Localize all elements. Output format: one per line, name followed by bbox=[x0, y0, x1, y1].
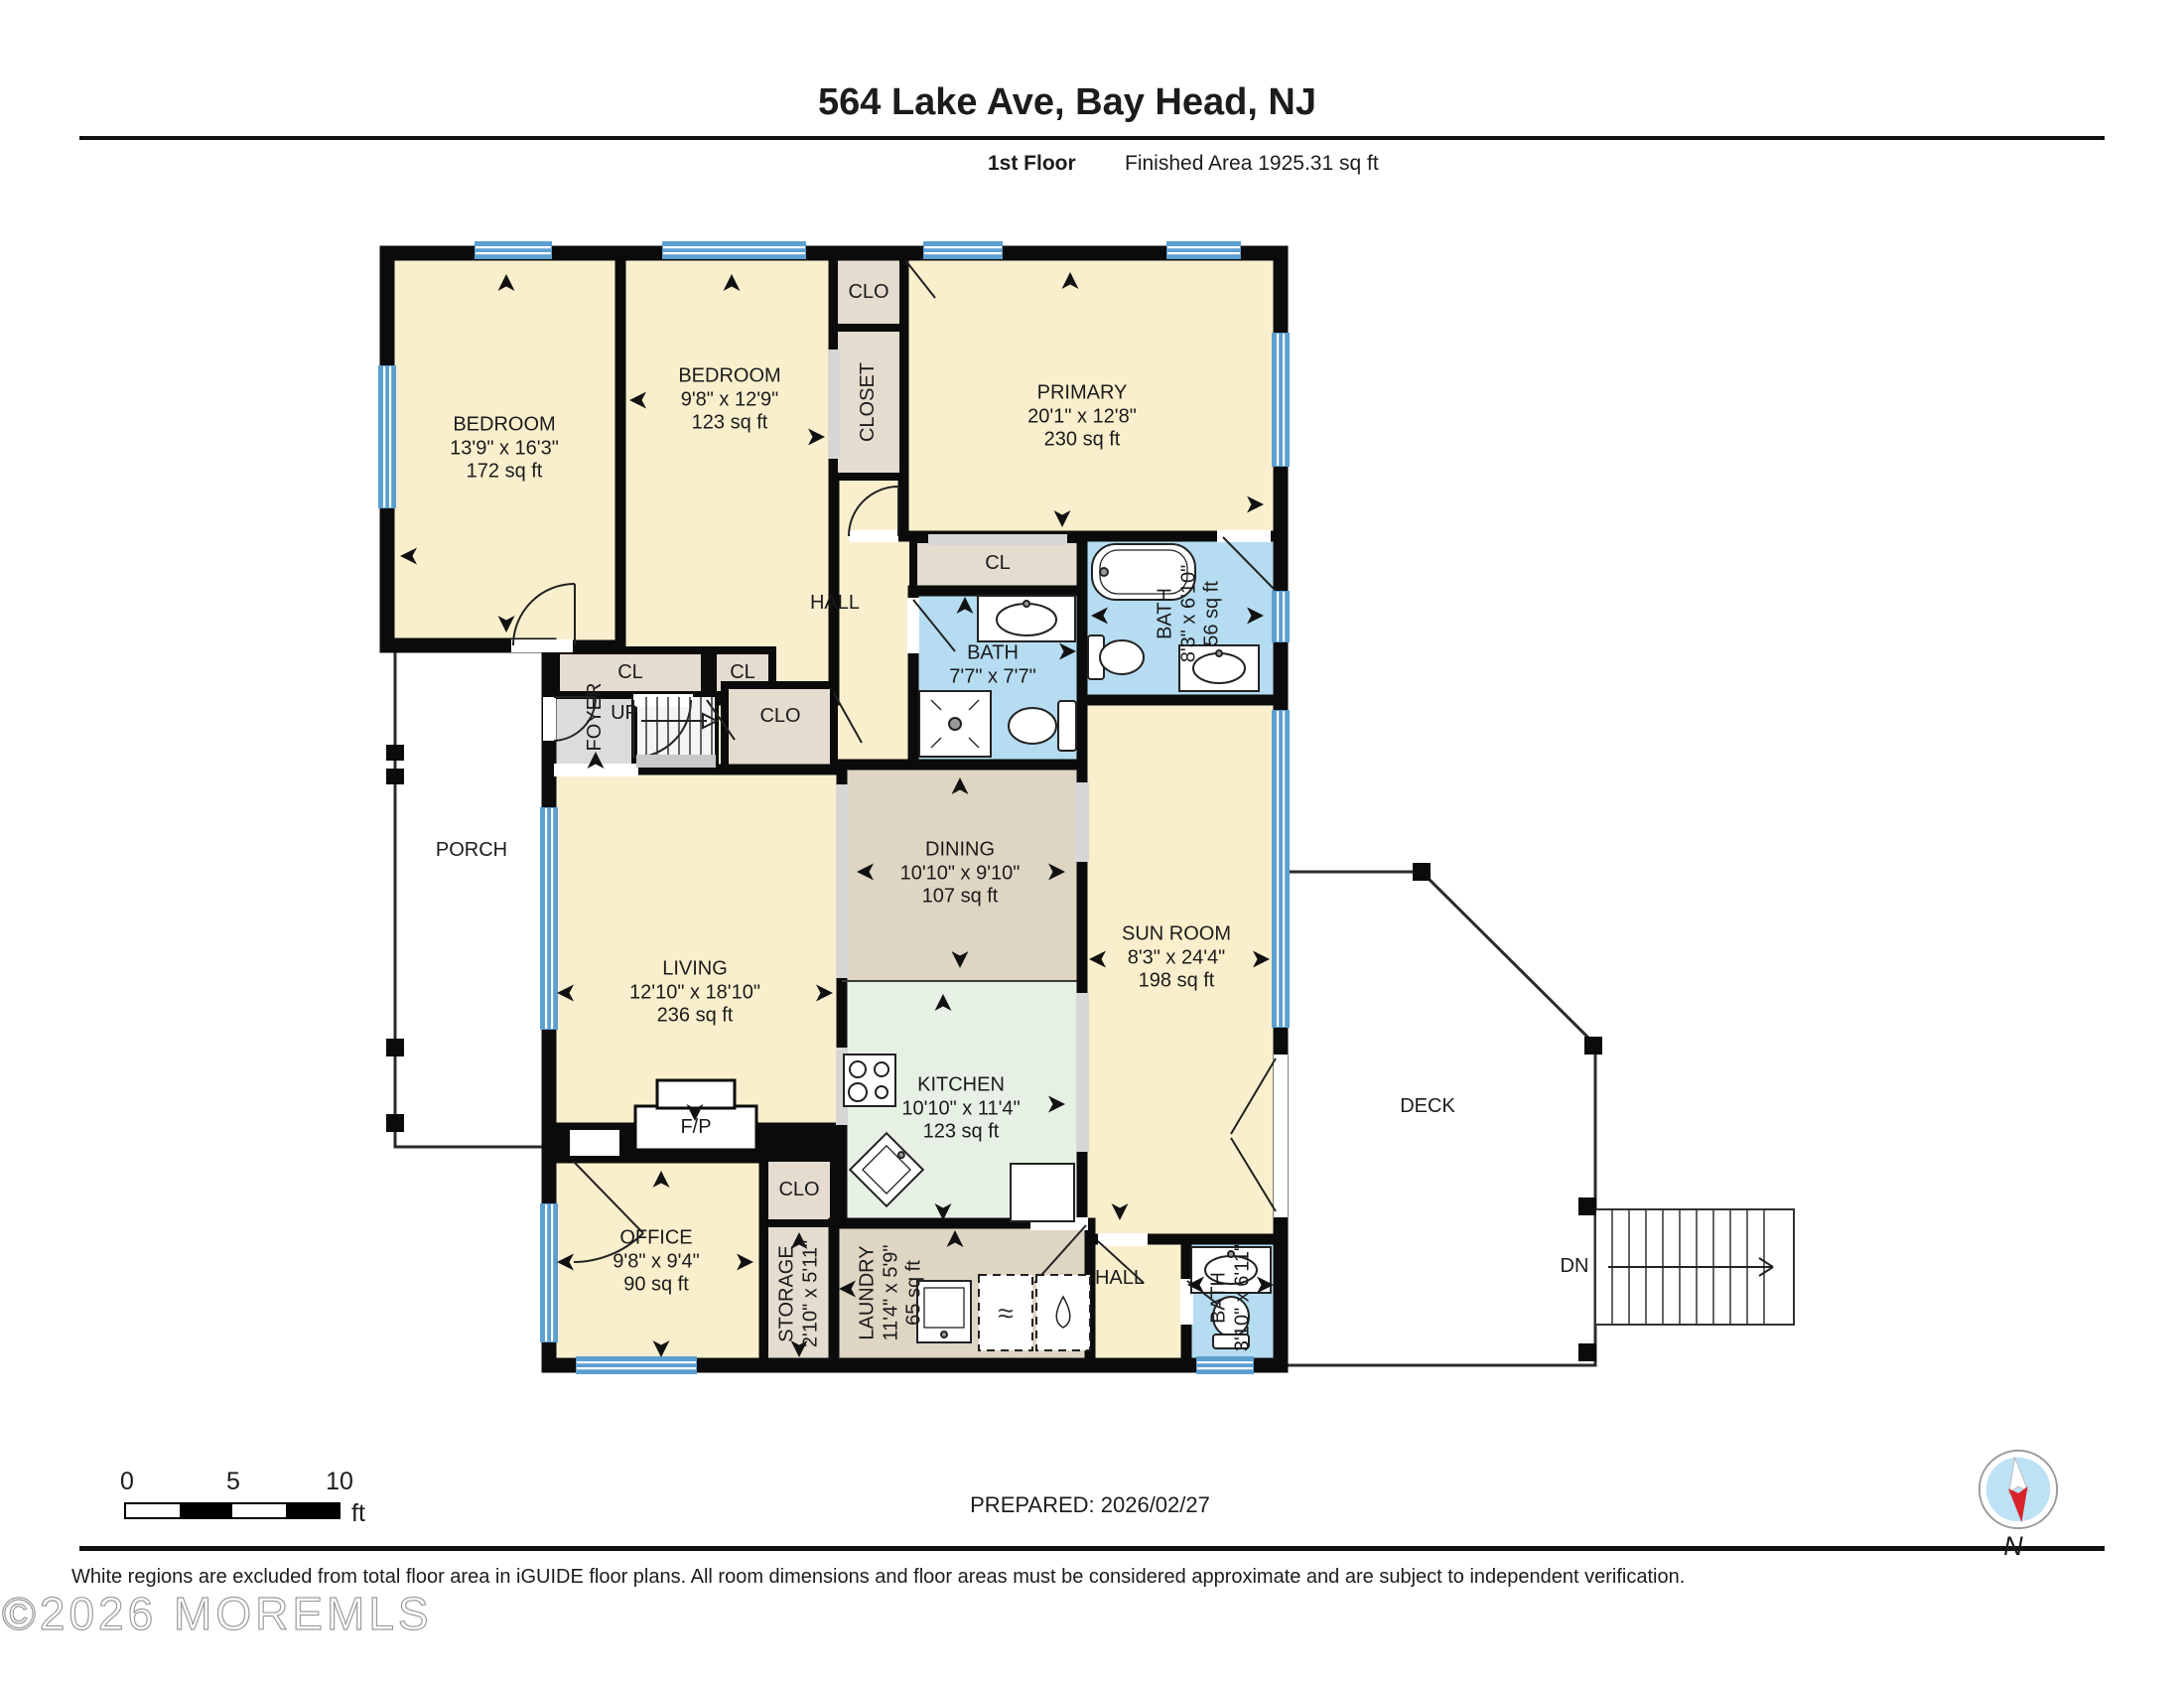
room-name: CLO bbox=[759, 705, 800, 729]
room-label-kitchen: KITCHEN 10'10" x 11'4" 123 sq ft bbox=[901, 1074, 1020, 1145]
room-dims: 9'8" x 9'4" bbox=[613, 1250, 699, 1274]
floor-plan-drawing: ≈ bbox=[0, 0, 2184, 1688]
room-label-sunroom: SUN ROOM 8'3" x 24'4" 198 sq ft bbox=[1122, 923, 1231, 994]
room-name: CLOSET bbox=[857, 362, 881, 442]
room-area: 198 sq ft bbox=[1122, 970, 1231, 994]
room-label-living: LIVING 12'10" x 18'10" 236 sq ft bbox=[629, 958, 760, 1029]
room-label-office: OFFICE 9'8" x 9'4" 90 sq ft bbox=[613, 1227, 699, 1298]
room-name: BATH bbox=[949, 641, 1035, 665]
room-name: UP bbox=[611, 702, 638, 726]
compass-icon bbox=[1974, 1445, 2063, 1534]
scale-tick-5: 5 bbox=[226, 1468, 240, 1496]
room-label-deck: DECK bbox=[1400, 1095, 1455, 1119]
room-label-bath-2: BATH 8'3" x 6'10" 56 sq ft bbox=[1155, 565, 1225, 663]
fireplace-label: F/P bbox=[680, 1116, 711, 1140]
stairs-up-label: UP bbox=[611, 702, 638, 726]
room-label-porch: PORCH bbox=[436, 839, 507, 863]
floorplan-page: 564 Lake Ave, Bay Head, NJ 1st Floor Fin… bbox=[0, 0, 2184, 1688]
room-dims: 7'7" x 7'7" bbox=[949, 665, 1035, 689]
room-dims: 20'1" x 12'8" bbox=[1027, 405, 1137, 429]
room-name: FOYER bbox=[584, 683, 608, 752]
room-label-clo-office: CLO bbox=[778, 1179, 819, 1202]
room-name: BATH bbox=[1155, 565, 1178, 663]
watermark: ©2026 MOREMLS bbox=[2, 1587, 433, 1640]
room-name: HALL bbox=[1095, 1267, 1145, 1291]
room-label-clo-mid: CLO bbox=[759, 705, 800, 729]
scale-unit: ft bbox=[351, 1499, 365, 1528]
porch-outline bbox=[395, 631, 549, 1147]
room-name: OFFICE bbox=[613, 1227, 699, 1251]
room-name: DECK bbox=[1400, 1095, 1455, 1119]
room-label-cl-2: CL bbox=[730, 661, 755, 685]
scale-tick-10: 10 bbox=[326, 1468, 353, 1496]
room-name: CLO bbox=[848, 281, 888, 305]
room-dims: 11'4" x 5'9" bbox=[880, 1244, 903, 1340]
room-label-dining: DINING 10'10" x 9'10" 107 sq ft bbox=[900, 839, 1021, 910]
room-area: 107 sq ft bbox=[900, 886, 1021, 910]
room-dims: 10'10" x 11'4" bbox=[901, 1097, 1020, 1121]
room-name: BATH bbox=[1207, 1244, 1231, 1351]
room-dims: 8'3" x 24'4" bbox=[1122, 946, 1231, 970]
room-name: LAUNDRY bbox=[857, 1244, 881, 1340]
room-area: 230 sq ft bbox=[1027, 429, 1137, 453]
room-name: DINING bbox=[900, 839, 1021, 863]
room-label-storage: STORAGE 2'10" x 5'11" bbox=[775, 1240, 822, 1347]
room-dims: 3'10" x 6'11" bbox=[1231, 1244, 1255, 1351]
room-area: 123 sq ft bbox=[678, 412, 780, 436]
stairs-down bbox=[1595, 1209, 1794, 1325]
scale-bar: 0 5 10 ft bbox=[109, 1468, 407, 1537]
room-dims: 8'3" x 6'10" bbox=[1177, 565, 1201, 663]
room-name: KITCHEN bbox=[901, 1074, 1020, 1098]
room-area: 236 sq ft bbox=[629, 1005, 760, 1029]
room-label-foyer: FOYER bbox=[584, 683, 608, 752]
room-label-cl-primary: CL bbox=[985, 552, 1011, 576]
room-label-closet: CLOSET bbox=[857, 362, 881, 442]
room-name: HALL bbox=[810, 592, 860, 616]
room-label-clo-top: CLO bbox=[848, 281, 888, 305]
room-dims: 12'10" x 18'10" bbox=[629, 981, 760, 1005]
disclaimer-text: White regions are excluded from total fl… bbox=[71, 1566, 1685, 1589]
room-label-bath-3: BATH 3'10" x 6'11" bbox=[1207, 1244, 1254, 1351]
room-name: PORCH bbox=[436, 839, 507, 863]
scale-tick-0: 0 bbox=[120, 1468, 134, 1496]
room-name: CLO bbox=[778, 1179, 819, 1202]
room-area: 56 sq ft bbox=[1201, 565, 1225, 663]
room-name: LIVING bbox=[629, 958, 760, 982]
room-label-laundry: LAUNDRY 11'4" x 5'9" 65 sq ft bbox=[857, 1244, 927, 1340]
footer-divider bbox=[79, 1546, 2105, 1551]
room-label-cl-1: CL bbox=[617, 661, 643, 685]
stairs-down-label: DN bbox=[1561, 1255, 1589, 1279]
prepared-date: PREPARED: 2026/02/27 bbox=[970, 1492, 1210, 1518]
room-name: DN bbox=[1561, 1255, 1589, 1279]
room-name: CL bbox=[730, 661, 755, 685]
room-label-hall-lower: HALL bbox=[1095, 1267, 1145, 1291]
room-name: BEDROOM bbox=[450, 414, 559, 438]
room-label-primary: PRIMARY 20'1" x 12'8" 230 sq ft bbox=[1027, 382, 1137, 453]
room-name: BEDROOM bbox=[678, 365, 780, 389]
room-name: F/P bbox=[680, 1116, 711, 1140]
room-name: SUN ROOM bbox=[1122, 923, 1231, 947]
room-dims: 13'9" x 16'3" bbox=[450, 437, 559, 461]
room-dims: 9'8" x 12'9" bbox=[678, 388, 780, 412]
room-dims: 2'10" x 5'11" bbox=[799, 1240, 823, 1347]
room-area: 65 sq ft bbox=[903, 1244, 927, 1340]
room-label-hall-upper: HALL bbox=[810, 592, 860, 616]
room-area: 90 sq ft bbox=[613, 1274, 699, 1298]
room-area: 123 sq ft bbox=[901, 1121, 1020, 1145]
scale-bar-segments bbox=[124, 1502, 341, 1519]
room-dims: 10'10" x 9'10" bbox=[900, 862, 1021, 886]
room-name: CL bbox=[985, 552, 1011, 576]
room-label-bath-1: BATH 7'7" x 7'7" bbox=[949, 641, 1035, 688]
svg-text:≈: ≈ bbox=[998, 1298, 1013, 1329]
room-name: CL bbox=[617, 661, 643, 685]
room-label-bedroom-2: BEDROOM 9'8" x 12'9" 123 sq ft bbox=[678, 365, 780, 436]
room-area: 172 sq ft bbox=[450, 461, 559, 485]
room-name: STORAGE bbox=[775, 1240, 799, 1347]
room-name: PRIMARY bbox=[1027, 382, 1137, 406]
compass-north-label: N bbox=[2003, 1531, 2023, 1562]
room-label-bedroom-1: BEDROOM 13'9" x 16'3" 172 sq ft bbox=[450, 414, 559, 485]
